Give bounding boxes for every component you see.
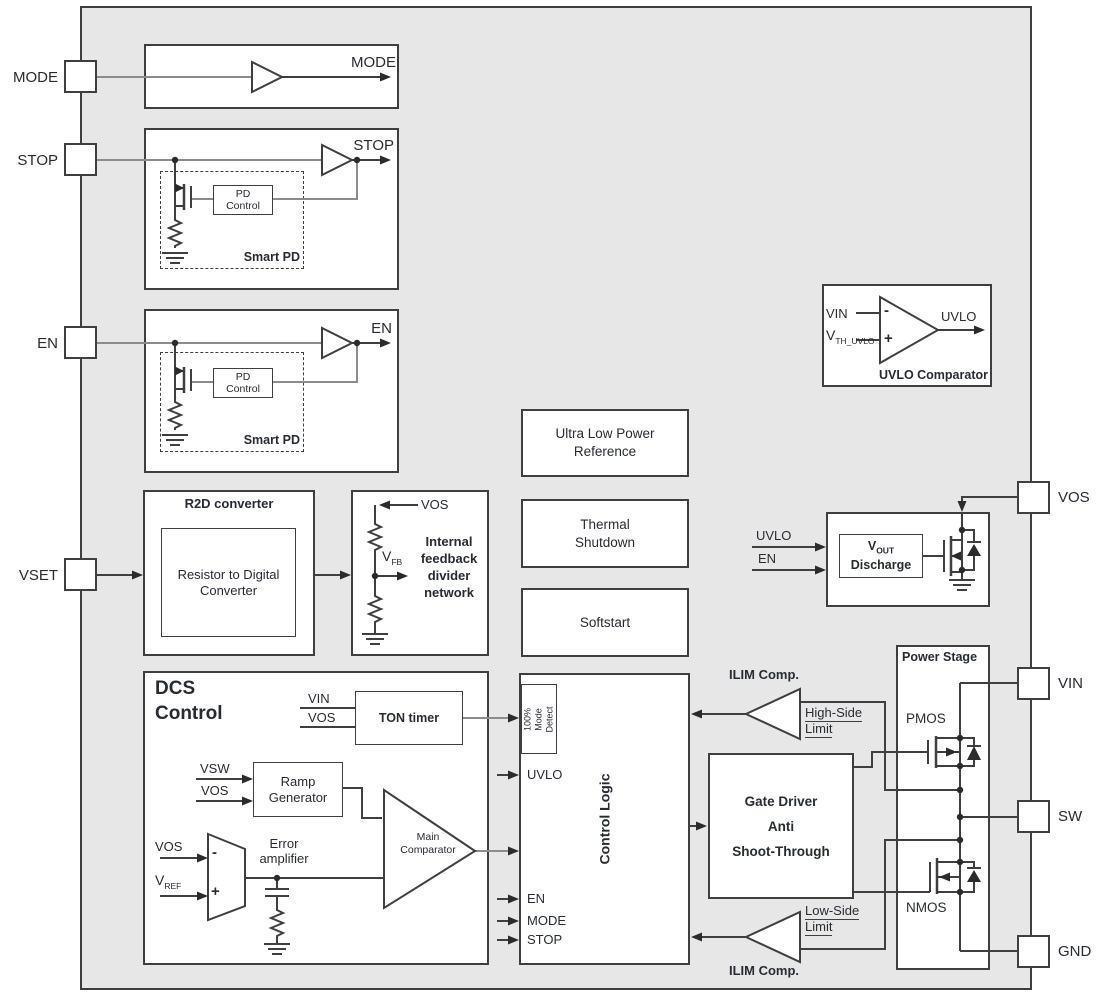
pin-vset — [64, 558, 97, 591]
mode-detect-label: 100% Mode Detect — [523, 701, 556, 737]
ramp-generator-label: Ramp Generator — [253, 762, 343, 817]
uvlo-cmp-minus: - — [884, 303, 889, 318]
pin-label-stop: STOP — [2, 152, 58, 169]
uvlo-cmp-title: UVLO Comparator — [842, 368, 988, 383]
ilim-low-title: ILIM Comp. — [714, 963, 814, 978]
erramp-plus: + — [211, 884, 220, 899]
pin-label-en: EN — [2, 335, 58, 352]
pin-label-gnd: GND — [1058, 943, 1091, 960]
en-output-label: EN — [300, 320, 392, 337]
stop-smart-pd-label: Smart PD — [200, 250, 300, 265]
pin-en — [64, 326, 97, 359]
thermal-label: Thermal Shutdown — [521, 499, 689, 568]
diagram-canvas: MODE STOP EN VSET VOS VIN SW GND MODE ST… — [0, 0, 1100, 1006]
pin-label-sw: SW — [1058, 808, 1082, 825]
pin-vos — [1017, 481, 1050, 514]
pin-label-mode: MODE — [2, 69, 58, 86]
ton-vos-label: VOS — [308, 710, 335, 725]
pin-mode — [64, 60, 97, 93]
uvlo-cmp-vin-label: VIN — [826, 306, 848, 321]
softstart-label: Softstart — [521, 588, 689, 657]
en-smart-pd-label: Smart PD — [200, 433, 300, 448]
pin-label-vset: VSET — [2, 567, 58, 584]
control-logic-title: Control Logic — [597, 774, 613, 865]
stop-output-label: STOP — [300, 137, 394, 154]
pin-sw — [1017, 800, 1050, 833]
power-stage-title: Power Stage — [902, 650, 977, 665]
pin-label-vos: VOS — [1058, 489, 1090, 506]
ton-timer-label: TON timer — [355, 691, 463, 745]
ton-vin-label: VIN — [308, 691, 330, 706]
feedback-vfb-label: VFB — [382, 549, 402, 570]
mode-output-label: MODE — [300, 54, 396, 71]
power-stage-block — [896, 645, 990, 970]
uvlo-cmp-vth-label: VTH_UVLO — [826, 328, 875, 349]
r2d-title: R2D converter — [143, 496, 315, 511]
en-pd-control-label: PD Control — [213, 368, 273, 398]
erramp-vos-label: VOS — [155, 839, 182, 854]
cl-stop-label: STOP — [527, 932, 562, 947]
gate-driver-label: Gate Driver Anti Shoot-Through — [708, 753, 854, 899]
error-amplifier-label: Error amplifier — [246, 836, 322, 866]
ilim-low-l1: Low-Side — [805, 903, 859, 918]
ilim-low-l2: Limit — [805, 919, 832, 934]
discharge-inner-label: VOUT Discharge — [839, 534, 923, 578]
r2d-body-label: Resistor to Digital Converter — [161, 528, 296, 637]
ilim-high-l1: High-Side — [805, 705, 862, 720]
pin-stop — [64, 143, 97, 176]
pin-label-vin: VIN — [1058, 675, 1083, 692]
pin-gnd — [1017, 935, 1050, 968]
reference-label: Ultra Low Power Reference — [521, 409, 689, 477]
main-comparator-label: Main Comparator — [390, 831, 466, 857]
dcs-title: DCS Control — [155, 676, 223, 726]
cl-uvlo-label: UVLO — [527, 767, 562, 782]
erramp-minus: - — [212, 845, 217, 860]
ramp-vsw-label: VSW — [200, 761, 230, 776]
pmos-label: PMOS — [906, 711, 946, 726]
cl-mode-label: MODE — [527, 913, 566, 928]
pin-vin — [1017, 667, 1050, 700]
discharge-uvlo-label: UVLO — [756, 528, 791, 543]
mode-detect-wrap: 100% Mode Detect — [521, 684, 557, 754]
ilim-high-title: ILIM Comp. — [714, 667, 814, 682]
cl-en-label: EN — [527, 891, 545, 906]
feedback-title: Internal feedback divider network — [411, 533, 487, 601]
feedback-vos-label: VOS — [421, 497, 448, 512]
discharge-en-label: EN — [758, 551, 776, 566]
stop-pd-control-label: PD Control — [213, 185, 273, 215]
uvlo-cmp-out-label: UVLO — [941, 309, 976, 324]
nmos-label: NMOS — [906, 900, 947, 915]
ramp-vos-label: VOS — [201, 783, 228, 798]
ilim-high-l2: Limit — [805, 721, 832, 736]
erramp-vref-label: VREF — [155, 873, 181, 894]
uvlo-cmp-plus: + — [884, 331, 893, 346]
